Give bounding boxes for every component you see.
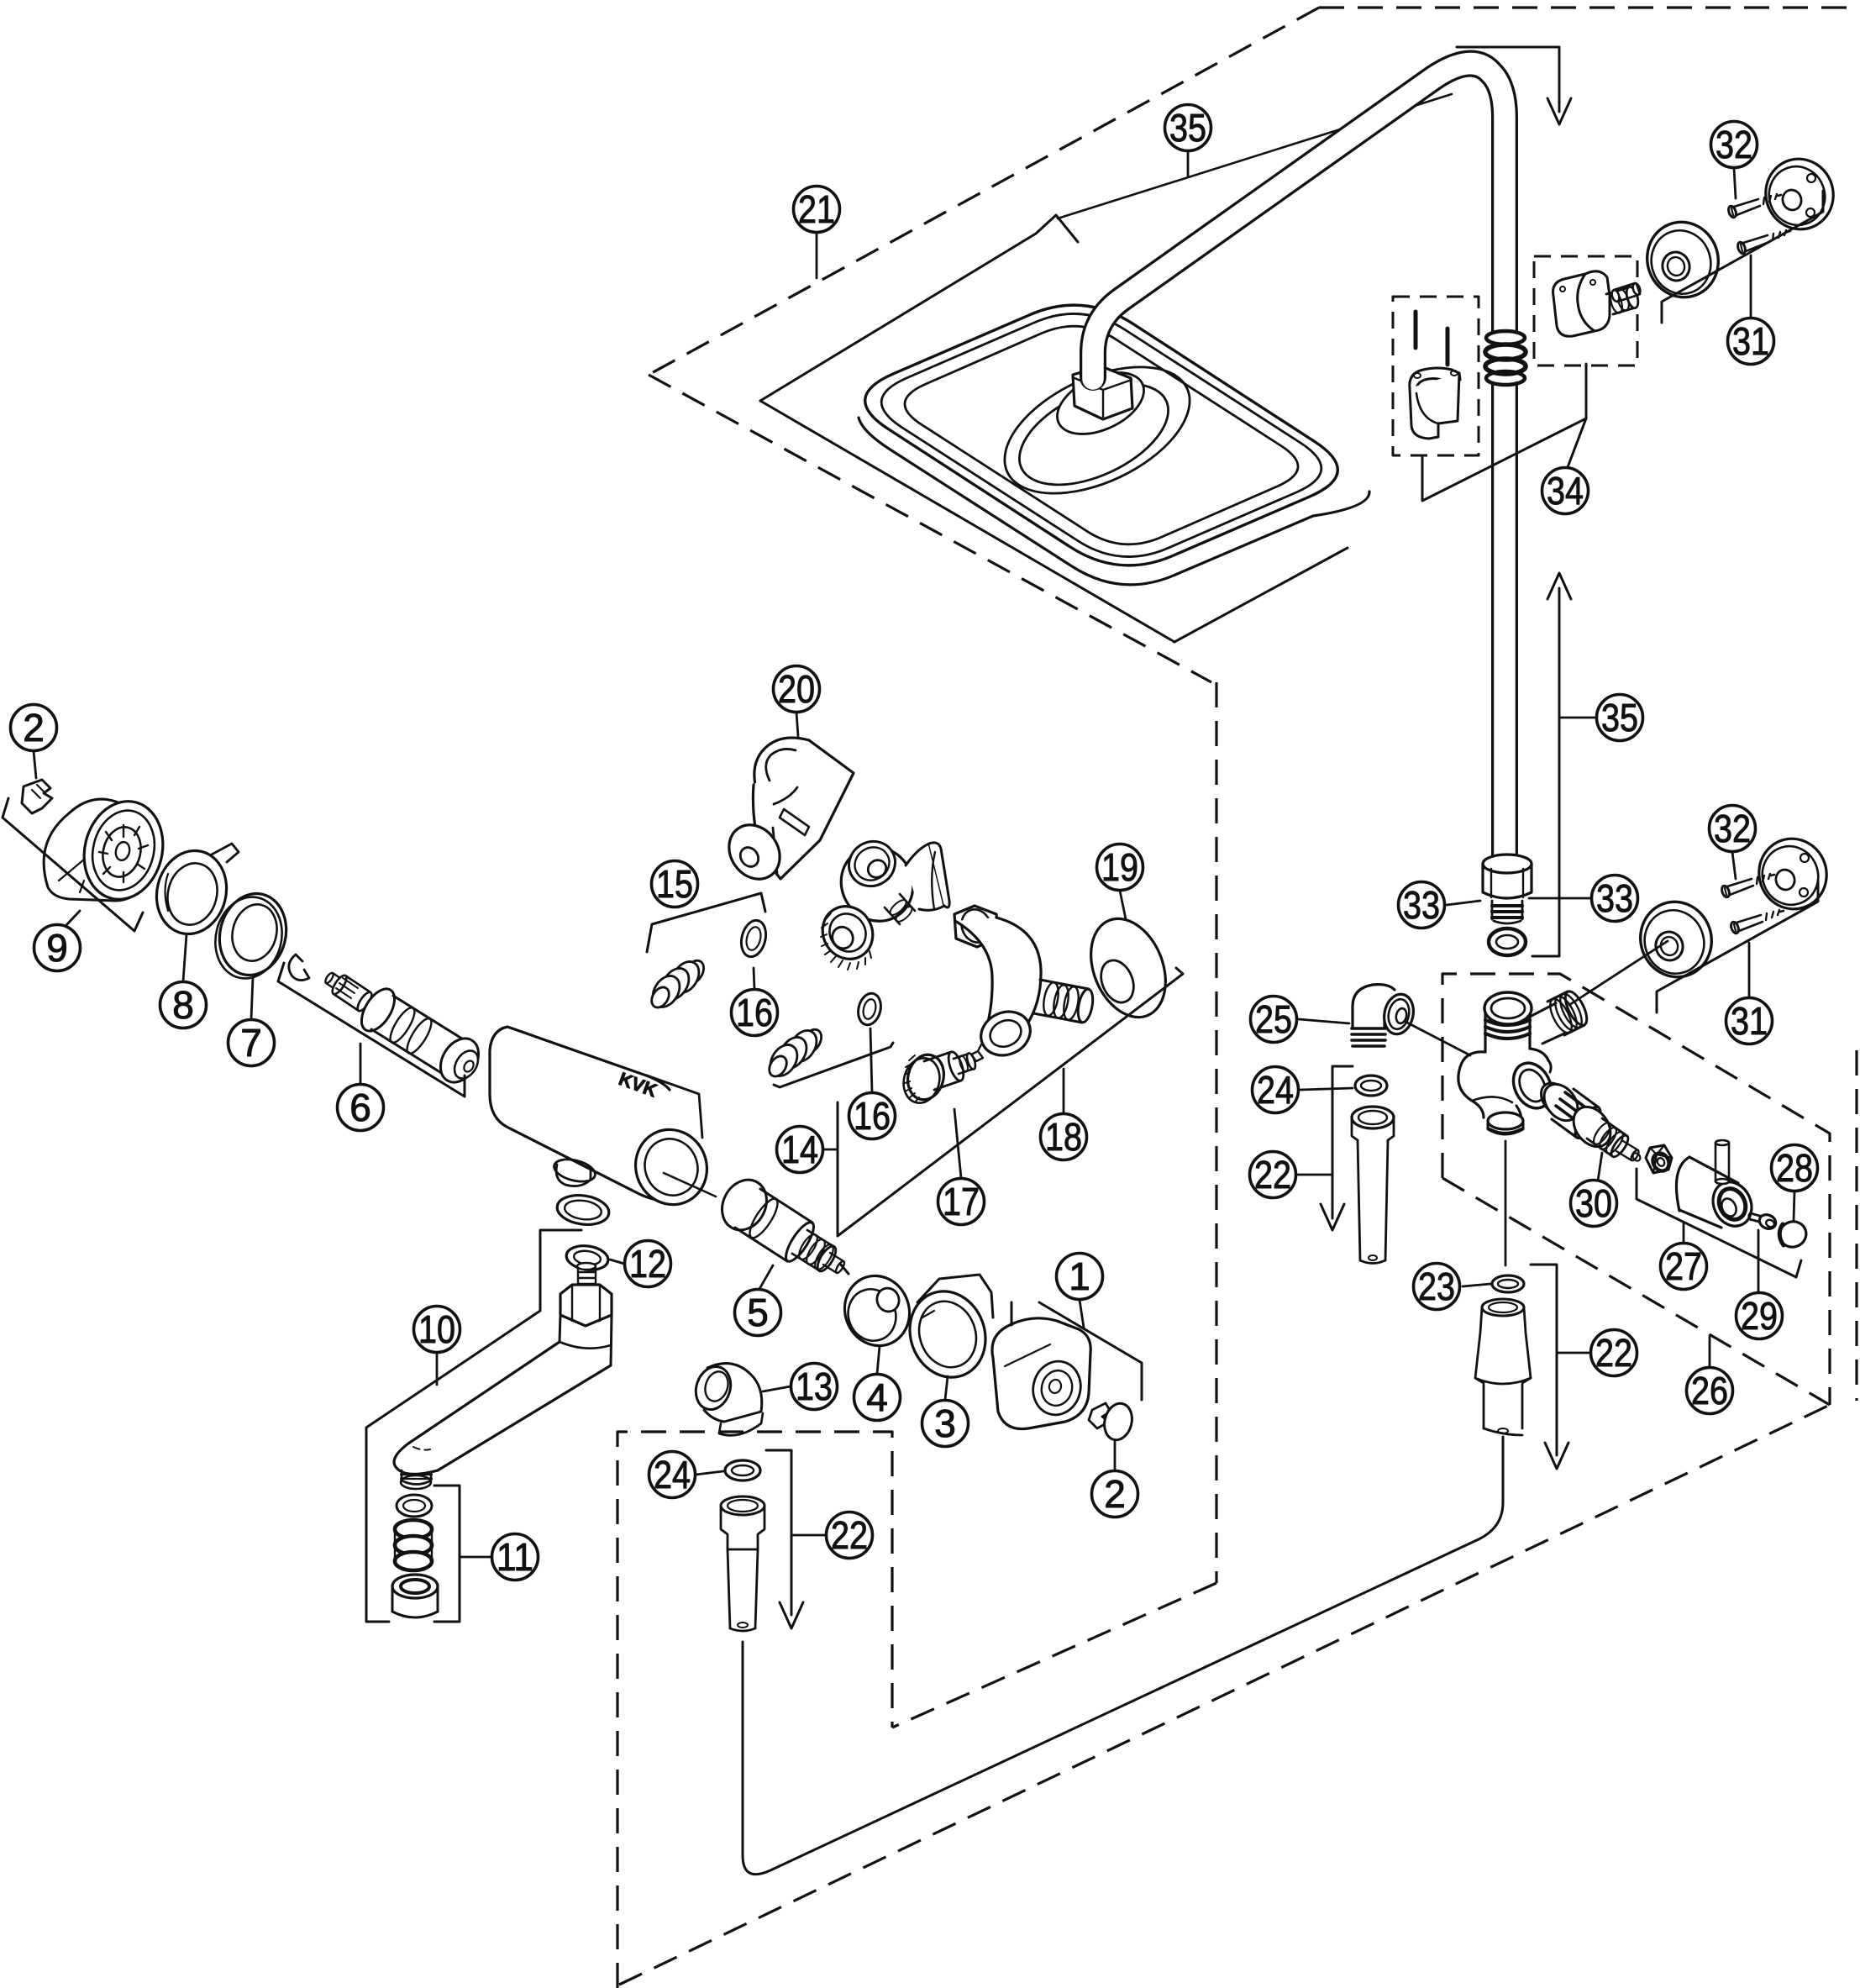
- svg-text:1: 1: [1069, 1254, 1090, 1298]
- svg-text:23: 23: [1418, 1265, 1455, 1308]
- svg-text:12: 12: [629, 1242, 666, 1286]
- svg-text:3: 3: [934, 1402, 956, 1445]
- svg-text:31: 31: [1732, 319, 1769, 363]
- svg-text:24: 24: [654, 1453, 691, 1496]
- svg-text:2: 2: [1104, 1472, 1126, 1516]
- svg-text:25: 25: [1255, 997, 1292, 1041]
- svg-text:22: 22: [1595, 1331, 1632, 1375]
- svg-text:16: 16: [736, 991, 773, 1034]
- svg-text:28: 28: [1776, 1146, 1813, 1190]
- svg-text:14: 14: [781, 1128, 818, 1171]
- svg-text:24: 24: [1257, 1068, 1294, 1112]
- svg-text:22: 22: [831, 1513, 868, 1557]
- svg-text:17: 17: [943, 1180, 980, 1223]
- svg-text:32: 32: [1716, 123, 1752, 166]
- svg-text:5: 5: [747, 1291, 769, 1334]
- svg-text:31: 31: [1731, 999, 1768, 1043]
- svg-text:20: 20: [778, 667, 815, 711]
- svg-text:10: 10: [418, 1307, 455, 1351]
- svg-text:33: 33: [1403, 883, 1440, 927]
- svg-text:8: 8: [172, 983, 194, 1027]
- svg-text:33: 33: [1596, 876, 1633, 920]
- svg-text:30: 30: [1575, 1181, 1612, 1225]
- svg-text:35: 35: [1169, 106, 1206, 150]
- svg-text:15: 15: [656, 862, 693, 906]
- svg-text:22: 22: [1254, 1153, 1291, 1196]
- svg-text:4: 4: [866, 1375, 888, 1419]
- svg-text:26: 26: [1691, 1369, 1728, 1412]
- svg-text:32: 32: [1714, 807, 1751, 850]
- svg-text:18: 18: [1045, 1115, 1082, 1159]
- svg-text:2: 2: [23, 706, 45, 749]
- svg-text:16: 16: [854, 1094, 891, 1138]
- svg-text:19: 19: [1101, 845, 1138, 889]
- svg-text:35: 35: [1601, 696, 1638, 739]
- svg-text:27: 27: [1665, 1244, 1702, 1288]
- svg-text:6: 6: [349, 1086, 371, 1129]
- svg-text:21: 21: [798, 187, 835, 231]
- svg-text:11: 11: [497, 1535, 533, 1579]
- svg-text:29: 29: [1741, 1294, 1778, 1338]
- svg-text:7: 7: [240, 1021, 262, 1065]
- svg-text:13: 13: [796, 1365, 833, 1408]
- svg-text:34: 34: [1547, 469, 1584, 513]
- svg-text:9: 9: [46, 926, 68, 970]
